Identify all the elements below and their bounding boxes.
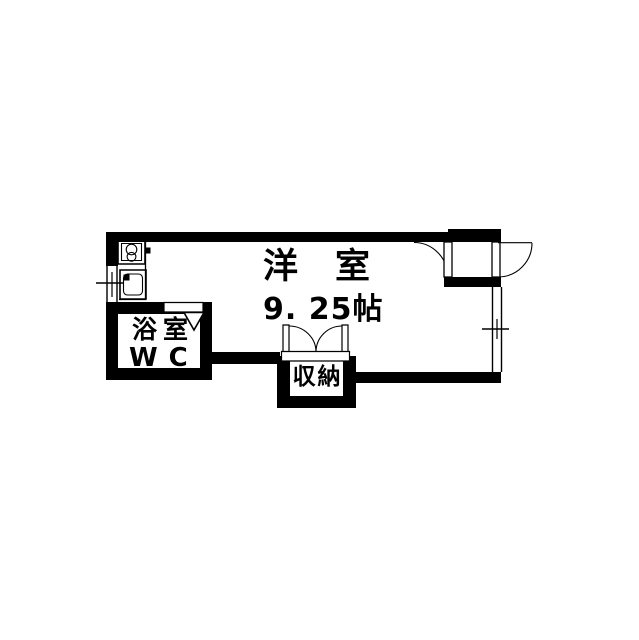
- interior-door-swing-icon: [414, 242, 452, 278]
- bath-room-label: 浴室: [120, 317, 200, 342]
- left-window-icon: [96, 265, 123, 303]
- floorplan-canvas: 洋 室 9. 25帖 浴室 WC 収納: [0, 0, 639, 640]
- closet-double-door-swing-icon: [282, 325, 350, 361]
- stove-icon: [118, 240, 151, 264]
- wc-label: WC: [118, 345, 198, 371]
- main-room-size-label: 9. 25帖: [263, 295, 383, 325]
- main-room-label: 洋 室: [263, 250, 371, 285]
- entrance-door-swing-icon: [492, 242, 532, 277]
- sink-icon: [120, 270, 146, 299]
- right-window-icon: [482, 287, 509, 372]
- closet-label: 収納: [289, 366, 344, 389]
